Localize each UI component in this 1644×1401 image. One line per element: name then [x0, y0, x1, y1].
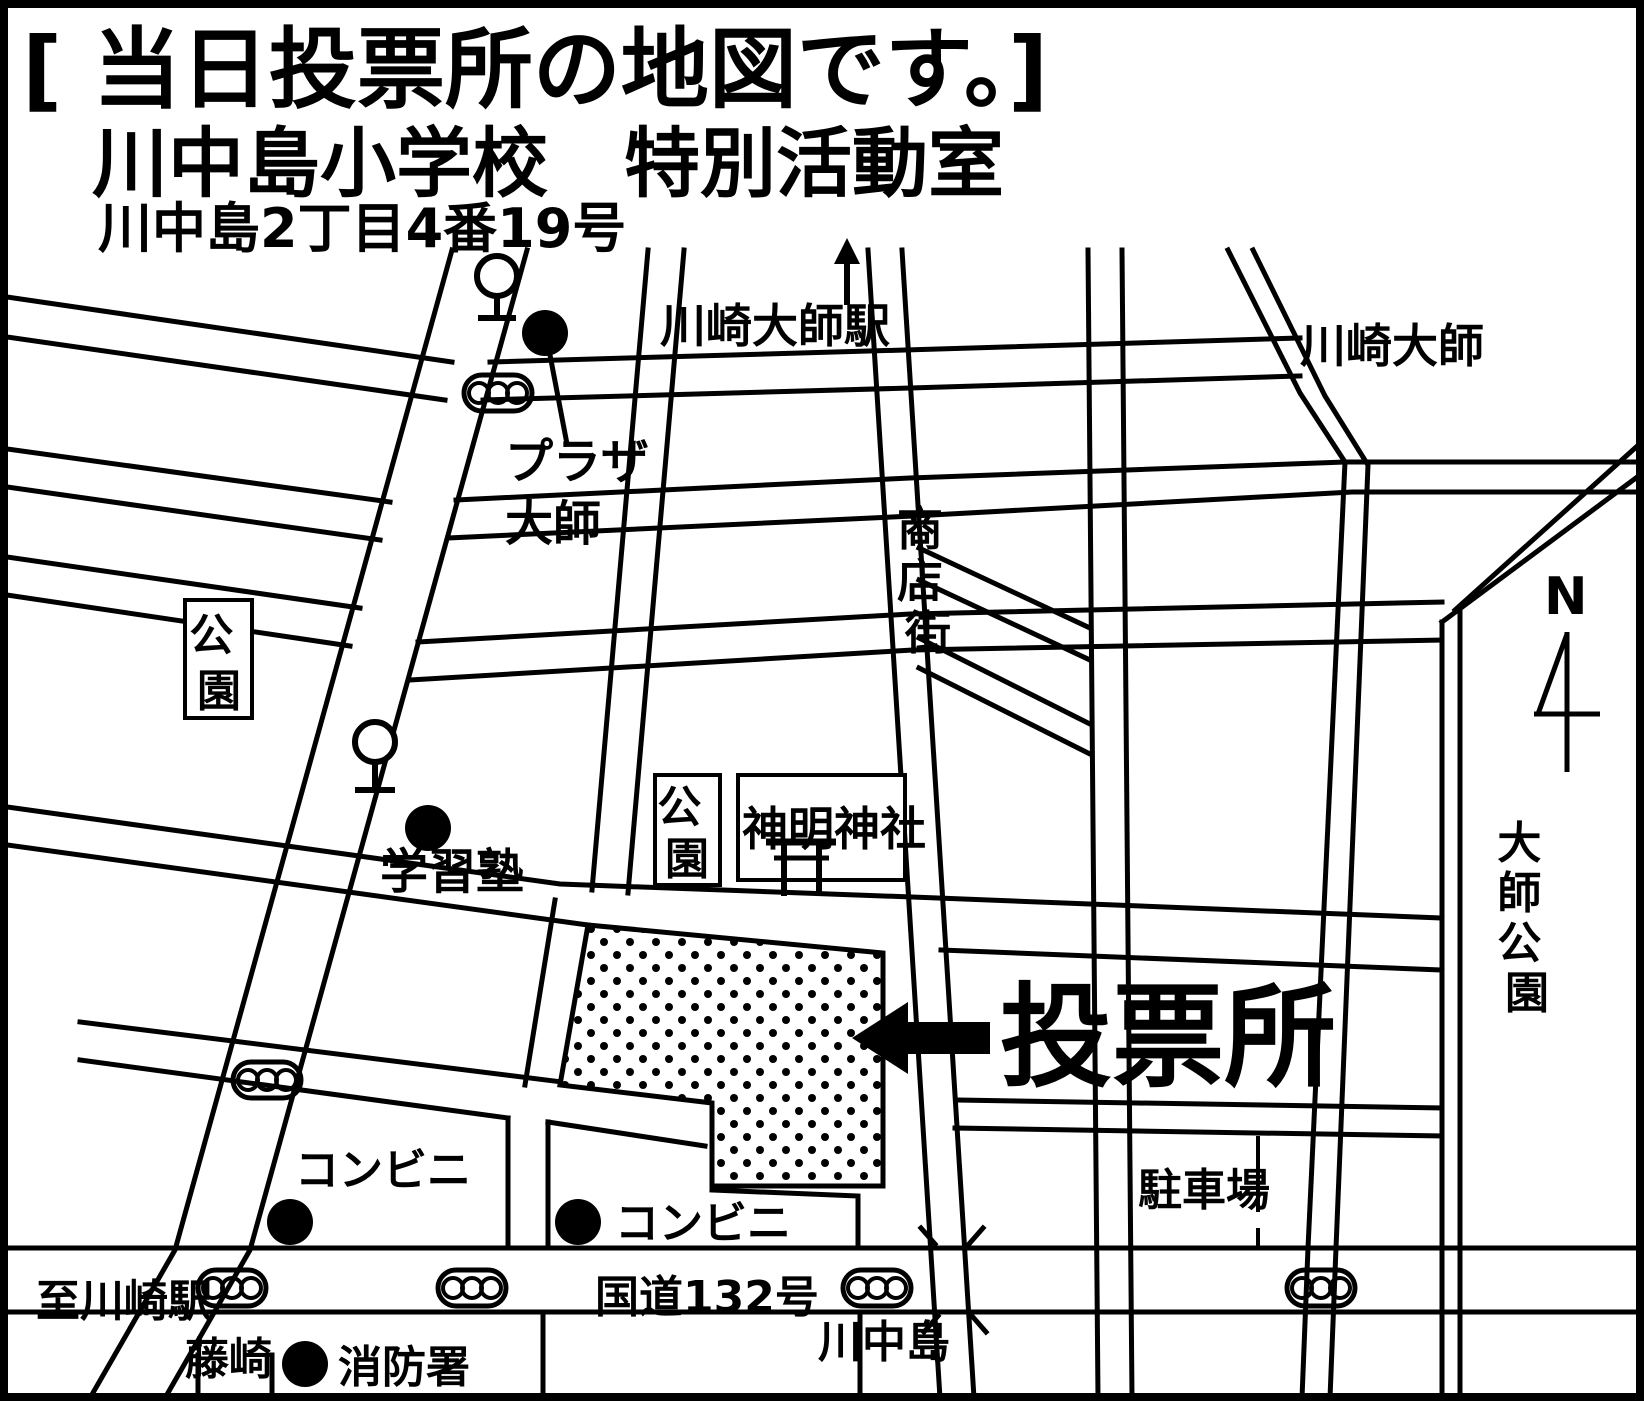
label-to-kawasaki-station: 至川崎駅: [36, 1276, 212, 1327]
compass-n-label: N: [1544, 567, 1588, 627]
daishi-park-char3: 公: [1497, 918, 1541, 969]
vertical-street2-west-edge: [1088, 250, 1098, 1398]
svg-text:公 園: 公 園: [657, 782, 716, 885]
polling-site-school-block: [560, 925, 883, 1186]
label-convenience1: コンビニ: [295, 1145, 471, 1196]
label-kawanakajima: 川中島: [818, 1317, 950, 1368]
station-street-top: [490, 338, 1300, 362]
daishi-park-char1: 大: [1497, 818, 1541, 869]
park1-box: 公 園: [185, 600, 252, 718]
west-street3-bottom: [0, 594, 350, 646]
convenience-street-top: [80, 1022, 562, 1082]
traffic-light-icon: [1287, 1270, 1355, 1306]
west-street1-top: [0, 296, 452, 362]
daishi-park-char2: 師: [1497, 868, 1541, 919]
traffic-light-icon: [843, 1270, 911, 1306]
label-shinmei-shrine: 神明神社: [742, 802, 926, 856]
street-f-bottom: [955, 1128, 1442, 1136]
label-plaza-line2: 大師: [505, 496, 601, 552]
traffic-light-icon: [438, 1270, 506, 1306]
label-fujisaki: 藤崎: [185, 1334, 273, 1385]
station-street-bottom: [483, 376, 1300, 400]
park1-char1: 公: [189, 610, 233, 661]
label-parking: 駐車場: [1138, 1165, 1270, 1216]
poi-dot-convenience2: [555, 1199, 601, 1245]
page-title: [ 当日投票所の地図です。]: [22, 18, 1048, 121]
daishi-diagonal-street-west-edge: [1228, 250, 1345, 1398]
daishi-park-char4: 園: [1505, 968, 1549, 1019]
station-direction-arrow-icon: [834, 238, 860, 305]
shotengai-char2: 店: [897, 554, 943, 608]
cram-school-street-bottom-east: [941, 950, 1442, 970]
park2-box: 公 園: [655, 775, 720, 885]
label-kawasaki-daishi-station: 川崎大師駅: [660, 299, 890, 353]
label-plaza-line1: プラザ: [505, 434, 649, 490]
poi-dot-convenience1: [267, 1199, 313, 1245]
main-diagonal-road-east-edge: [165, 250, 527, 1398]
polling-place-map-sheet: [ 当日投票所の地図です。] 川中島小学校 特別活動室 川中島2丁目4番19号: [0, 0, 1644, 1401]
label-fire-station: 消防署: [338, 1342, 470, 1393]
label-daishi-park: 大 師 公 園: [1497, 818, 1556, 1019]
venue-title: 川中島小学校 特別活動室: [92, 119, 1004, 208]
station-symbol-icon: [355, 722, 395, 790]
poi-dot-fire-station: [282, 1341, 328, 1387]
vertical-street2-east-edge: [1122, 250, 1132, 1398]
label-shopping-street: 商 店 街: [897, 502, 959, 660]
shotengai-char1: 商: [897, 502, 943, 556]
map-canvas: [ 当日投票所の地図です。] 川中島小学校 特別活動室 川中島2丁目4番19号: [0, 0, 1644, 1401]
label-route132: 国道132号: [595, 1272, 819, 1323]
label-kawasaki-daishi: 川崎大師: [1300, 319, 1484, 373]
school-west-street-edge: [525, 900, 555, 1085]
label-polling-place: 投票所: [1000, 973, 1336, 1103]
park2-char1: 公: [657, 782, 701, 833]
title-block: [ 当日投票所の地図です。] 川中島小学校 特別活動室 川中島2丁目4番19号: [22, 18, 1048, 260]
convenience2-block-top-edge: [548, 1122, 705, 1146]
north-compass-icon: N: [1534, 567, 1600, 772]
shotengai-char3: 街: [904, 606, 951, 660]
west-street1-bottom: [0, 336, 445, 400]
poi-dot-plaza: [522, 310, 568, 356]
venue-address: 川中島2丁目4番19号: [98, 197, 626, 260]
park2-char2: 園: [665, 834, 709, 885]
park1-char2: 園: [197, 666, 241, 717]
traffic-light-icon: [464, 375, 532, 411]
label-cram-school: 学習塾: [380, 844, 524, 900]
middle-street-west-edge: [592, 250, 648, 890]
label-convenience2: コンビニ: [615, 1198, 791, 1249]
